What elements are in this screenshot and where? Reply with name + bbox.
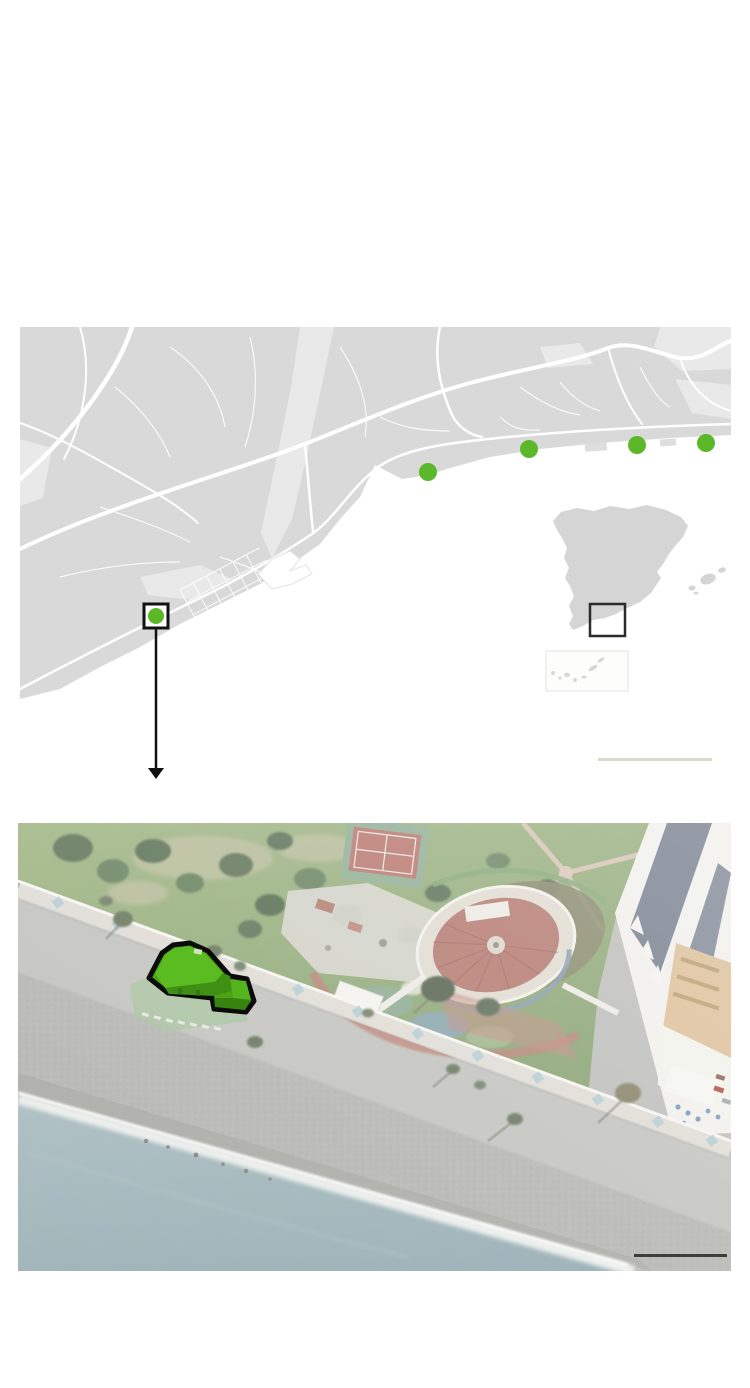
coast-marker [697,434,715,452]
building-door-1 [178,988,182,994]
spain-inset-map [546,505,727,691]
locator-map [20,327,731,789]
balearic-islands [689,567,727,595]
spain-silhouette [553,505,688,630]
satellite-view [18,823,731,1271]
highlighted-marker [148,608,164,624]
satellite-canvas [18,823,731,1271]
locator-map-canvas [20,327,731,789]
news-graphic-page [0,0,750,1388]
satellite-scale-bar [634,1254,727,1257]
coast-marker [520,440,538,458]
canary-islands-inset [546,651,628,691]
building-door-2 [196,990,200,996]
map-scale-bar [598,758,712,761]
haze-overlay [18,823,731,1271]
connector-arrow-head [148,768,164,779]
coast-marker [419,463,437,481]
coast-marker [628,436,646,454]
